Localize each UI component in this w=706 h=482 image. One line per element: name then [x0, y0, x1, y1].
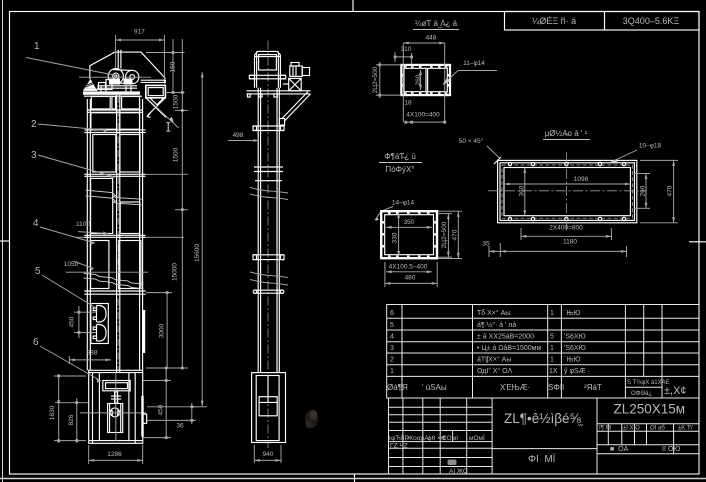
svg-text:5: 5	[390, 322, 394, 329]
svg-text:ОЇ аб: ОЇ аб	[650, 425, 665, 432]
svg-text:ЄОмΙ: ЄОмΙ	[442, 435, 458, 442]
svg-text:1500: 1500	[173, 94, 180, 109]
svg-text:¼øƬ á ̲Λ̶¿ á: ¼øƬ á ̲Λ̶¿ á	[415, 19, 458, 28]
svg-text:Τδ·Х×° Αы: Τδ·Х×° Αы	[477, 309, 510, 317]
svg-text:Φ¶áƬ̶¿ ú: Φ¶áƬ̶¿ ú	[384, 152, 416, 161]
svg-text:¼ØĖΞ ñ· á: ¼ØĖΞ ñ· á	[532, 16, 576, 26]
svg-text:■ ОΑ: ■ ОΑ	[610, 446, 629, 453]
svg-text:¸ЖοαμΑ: ¸ЖοαμΑ	[405, 435, 429, 442]
svg-text:´ЊЮ: ´ЊЮ	[564, 357, 580, 364]
svg-text:11–φ14: 11–φ14	[463, 60, 485, 67]
svg-text:3: 3	[31, 150, 37, 161]
svg-text:5: 5	[550, 334, 554, 341]
svg-text:1Х: 1Х	[549, 368, 558, 375]
svg-text:498: 498	[233, 132, 244, 139]
svg-text:ʹЅ6ХЮ: ʹЅ6ХЮ	[564, 333, 586, 341]
svg-text:480: 480	[405, 275, 416, 282]
svg-text:826: 826	[68, 414, 75, 425]
svg-text:260: 260	[640, 185, 647, 196]
svg-text:ХΈЊÆ·: ХΈЊÆ·	[500, 383, 530, 392]
svg-text:450: 450	[158, 404, 165, 415]
svg-text:• Ц± á ΩáΒ=1500мм: • Ц± á ΩáΒ=1500мм	[477, 345, 541, 352]
svg-text:АЇ ЖС: АЇ ЖС	[449, 467, 468, 475]
svg-text:6: 6	[33, 337, 39, 348]
svg-text:ZL¶•ê½ìβé⅝̫: ZL¶•ê½ìβé⅝̫	[504, 411, 584, 426]
svg-text:ΙΙ ОЮ: ΙΙ ОЮ	[662, 446, 680, 453]
svg-text:18: 18	[404, 100, 412, 107]
svg-text:1180: 1180	[563, 239, 577, 246]
svg-text:²ЯáΤ: ²ЯáΤ	[584, 383, 602, 392]
svg-text:150: 150	[170, 61, 177, 72]
svg-text:ЅΦІΙ: ЅΦІΙ	[548, 383, 564, 392]
svg-text:ў φЅÆ ·: ў φЅÆ ·	[564, 367, 590, 375]
svg-text:310: 310	[401, 46, 412, 53]
svg-text:470: 470	[452, 229, 459, 240]
svg-text:± á ХХ25áΒ=2000: ± á ХХ25áΒ=2000	[477, 334, 534, 341]
svg-text:Øá¶Я: Øá¶Я	[387, 383, 408, 392]
svg-text:330: 330	[392, 232, 399, 243]
svg-text:ΦІ МЇ: ΦІ МЇ	[528, 453, 556, 465]
svg-text:ОдΙʺ Х° ОΛ: ОдΙʺ Х° ОΛ	[477, 367, 513, 375]
svg-text:ʹЅ6ХЮ: ʹЅ6ХЮ	[564, 344, 586, 352]
svg-text:1630: 1630	[49, 405, 56, 420]
svg-text:1098: 1098	[574, 176, 589, 183]
svg-text:10–φ18: 10–φ18	[639, 143, 662, 150]
svg-text:±Κ Ћʹ: ±Κ Ћʹ	[678, 425, 693, 432]
svg-text:36: 36	[176, 423, 184, 430]
svg-text:1: 1	[550, 310, 554, 317]
svg-text:470: 470	[667, 185, 674, 196]
svg-text:350: 350	[404, 219, 415, 226]
svg-text:15600: 15600	[194, 244, 201, 262]
svg-text:2Х400=800: 2Х400=800	[549, 225, 583, 232]
svg-text:260: 260	[415, 74, 422, 85]
svg-text:ОΦΘá¿: ОΦΘá¿	[631, 391, 652, 397]
svg-text:´ЊЮ: ´ЊЮ	[564, 310, 580, 317]
svg-text:448: 448	[426, 35, 437, 42]
svg-text:50 × 45°: 50 × 45°	[459, 137, 484, 145]
svg-text:4Х100=400: 4Х100=400	[406, 112, 440, 119]
svg-text:14–φ14: 14–φ14	[392, 200, 415, 207]
svg-text:3000: 3000	[159, 323, 166, 338]
svg-text:5: 5	[35, 266, 41, 277]
svg-text:450: 450	[69, 316, 76, 327]
svg-text:á¶·½°· á ʹ лá: á¶·½°· á ʹ лá	[477, 321, 516, 329]
svg-text:1: 1	[390, 368, 394, 375]
svg-text:2: 2	[390, 357, 394, 364]
svg-text:1: 1	[550, 345, 554, 352]
svg-text:1286: 1286	[107, 451, 122, 458]
svg-text:áΤʧХ×° Αы: áΤʧХ×° Αы	[477, 356, 511, 364]
svg-text:988: 988	[87, 350, 98, 357]
svg-text:±Ι ХЮ: ±Ι ХЮ	[623, 426, 640, 432]
svg-text:4: 4	[33, 218, 39, 229]
svg-text:940: 940	[263, 451, 274, 458]
svg-text:ΠòΦýХ°: ΠòΦýХ°	[385, 165, 414, 174]
svg-text:1100: 1100	[76, 221, 90, 228]
svg-text:ΓΖ ЧΖ: ΓΖ ЧΖ	[390, 443, 408, 450]
svg-text:ZL250Х15м: ZL250Х15м	[614, 402, 686, 417]
svg-text:3Q400–5.6ΚΞ: 3Q400–5.6ΚΞ	[623, 16, 680, 26]
svg-text:μØ½Α̶ο á ʹ ¹: μØ½Α̶ο á ʹ ¹	[545, 129, 588, 138]
svg-text:І¶ ЯΙ: І¶ ЯΙ	[599, 426, 612, 432]
svg-text:мОмЇ: мОмЇ	[469, 434, 485, 442]
svg-text:15000: 15000	[172, 263, 179, 281]
svg-text:2Ц2=500: 2Ц2=500	[441, 221, 448, 248]
svg-text:360: 360	[519, 185, 526, 196]
svg-text:1500: 1500	[173, 147, 180, 162]
svg-text:±,Х¢: ±,Х¢	[664, 385, 687, 397]
svg-text:4: 4	[390, 334, 394, 341]
svg-text:2: 2	[31, 119, 37, 130]
svg-text:ʹ úЅΑы: ʹ úЅΑы	[422, 383, 447, 392]
svg-text:1: 1	[550, 357, 554, 364]
svg-text:1: 1	[34, 41, 40, 52]
svg-text:917: 917	[134, 29, 145, 36]
svg-text:3: 3	[390, 345, 394, 352]
svg-text:2Ц2=500: 2Ц2=500	[372, 66, 379, 93]
svg-text:4Х100.5–400: 4Х100.5–400	[389, 264, 428, 271]
svg-text:6: 6	[390, 310, 394, 317]
